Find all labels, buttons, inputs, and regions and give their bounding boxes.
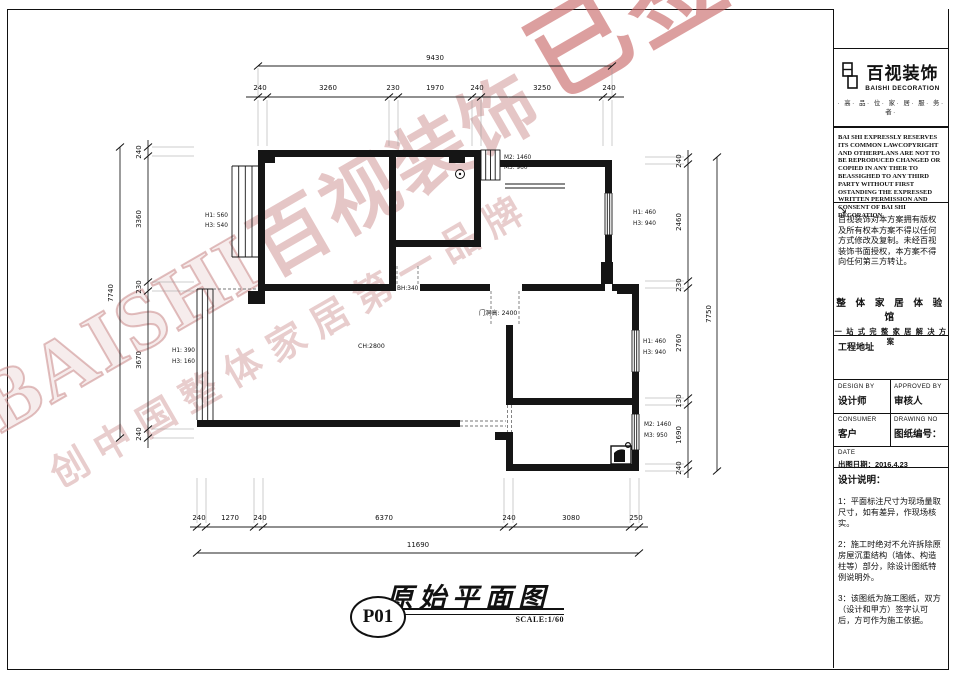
design-note-1: 1：平面标注尺寸为现场量取尺寸，如有差异，作现场核实。: [838, 496, 944, 529]
design-note-2: 2：施工时绝对不允许拆除原房屋沉重结构（墙体、构造柱等）部分，除设计图纸特例说明…: [838, 539, 944, 583]
walls: [197, 150, 639, 471]
label-m3-right: M3: 950: [644, 433, 668, 439]
dim-top-seg: 240: [470, 84, 483, 92]
approver-value: 审核人: [894, 393, 944, 407]
entry-door-hatch: [481, 150, 500, 180]
label-door-height: 门洞高: 2400: [479, 309, 517, 317]
label-ch: CH:2800: [358, 343, 385, 350]
bathroom-door-hatch: [632, 414, 639, 450]
dim-top-seg: 230: [386, 84, 399, 92]
dim-right-total: 7750: [705, 305, 713, 323]
label-m3-top: M3: 960: [504, 165, 528, 171]
logo-block: 百视装饰 BAISHI DECORATION · 高· 品· 位· 家· 居· …: [834, 48, 948, 128]
date-cell: DATE 出图日期：2016.4.23: [834, 446, 948, 468]
dim-top-seg: 240: [602, 84, 615, 92]
consumer-value: 客户: [838, 426, 886, 440]
dim-right-seg: 230: [675, 278, 683, 291]
design-by-label: DESIGN BY: [838, 383, 886, 390]
sheet-number-badge: P01: [350, 596, 406, 638]
drawing-no-value: 图纸编号：: [894, 426, 944, 440]
design-notes-block: 设计说明： 1：平面标注尺寸为现场量取尺寸，如有差异，作现场核实。 2：施工时绝…: [834, 468, 948, 640]
project-address-label: 工程地址: [838, 340, 944, 353]
consumer-label: CONSUMER: [838, 416, 886, 423]
dim-left-total: 7740: [107, 284, 115, 302]
dim-bottom-seg: 3080: [562, 514, 580, 522]
signature-grid: DESIGN BY 设计师 APPROVED BY 审核人 CONSUMER 客…: [834, 380, 948, 468]
dim-top-seg: 3260: [319, 84, 337, 92]
drawing-no-label: DRAWING NO: [894, 416, 944, 423]
scale-note: SCALE:1/60: [470, 615, 564, 624]
title-underline: [400, 608, 564, 615]
baishi-logo-icon: [842, 62, 862, 90]
dim-bottom-seg: 240: [192, 514, 205, 522]
dim-top-seg: 240: [253, 84, 266, 92]
dim-bottom-total: 11690: [407, 541, 429, 549]
dim-top: 9430 240 3260 230 1970 240 3250 240: [246, 54, 624, 101]
label-h3-right-up: H3: 940: [633, 221, 656, 227]
dim-top-seg: 1970: [426, 84, 444, 92]
title-block-panel: 百视装饰 BAISHI DECORATION · 高· 品· 位· 家· 居· …: [833, 9, 948, 668]
dim-right-seg: 240: [675, 154, 683, 167]
window-balcony-upper-left: [232, 166, 258, 257]
label-m2-top: M2: 1460: [504, 155, 532, 161]
plan-labels: M2: 1460 M3: 960 H1: 560 H3: 540 H1: 460…: [172, 155, 672, 439]
window-right-middle: [632, 330, 639, 372]
dim-top-seg: 3250: [533, 84, 551, 92]
label-h3-right-mid: H3: 940: [643, 350, 666, 356]
label-m2-right: M2: 1460: [644, 422, 672, 428]
toilet-icon: [611, 443, 631, 464]
dim-top-total: 9430: [426, 54, 444, 62]
label-h1-left-up: H1: 560: [205, 213, 228, 219]
dim-right-seg: 130: [675, 394, 683, 407]
label-h1-right-mid: H1: 460: [643, 339, 666, 345]
label-h3-left-low: H3: 160: [172, 359, 195, 365]
approved-by-cell: APPROVED BY 审核人: [890, 380, 948, 413]
date-label: DATE: [838, 449, 944, 456]
dim-left-seg: 230: [135, 280, 143, 293]
dim-bottom: 240 1270 240 6370 240 3080 250 11690: [190, 514, 648, 557]
dim-right-seg: 2460: [675, 213, 683, 231]
approved-by-label: APPROVED BY: [894, 383, 944, 390]
drawing-no-cell: DRAWING NO 图纸编号：: [890, 413, 948, 446]
design-note-3: 3：该图纸为施工图纸，双方（设计和甲方）签字认可后，方可作为施工依据。: [838, 593, 944, 626]
dim-bottom-seg: 240: [253, 514, 266, 522]
consumer-cell: CONSUMER 客户: [834, 413, 890, 446]
dim-bottom-seg: 250: [629, 514, 642, 522]
floor-drain-icon: [456, 170, 465, 179]
label-h3-left-up: H3: 540: [205, 223, 228, 229]
dim-bottom-seg: 6370: [375, 514, 393, 522]
logo-name-en: BAISHI DECORATION: [865, 85, 939, 92]
design-notes-title: 设计说明：: [838, 472, 944, 486]
dim-right-seg: 240: [675, 461, 683, 474]
project-address-block: 工程地址: [834, 335, 948, 380]
dim-left-seg: 3670: [135, 351, 143, 369]
copyright-chinese: 百视装饰对本方案拥有版权及所有权本方案不得以任何方式修改及复制。未经百视装饰书面…: [834, 215, 948, 268]
dim-left-seg: 240: [135, 145, 143, 158]
design-by-cell: DESIGN BY 设计师: [834, 380, 890, 413]
dim-bottom-seg: 1270: [221, 514, 239, 522]
columns: [248, 150, 632, 304]
dim-right-seg: 1690: [675, 426, 683, 444]
extension-lines: [152, 68, 684, 523]
designer-value: 设计师: [838, 393, 886, 407]
experience-hall-line: 整 体 家 居 体 验 馆: [834, 295, 948, 323]
logo-slogan: · 高· 品· 位· 家· 居· 服· 务· 者·: [834, 98, 948, 116]
label-h1-right-up: H1: 460: [633, 210, 656, 216]
dim-bottom-seg: 240: [502, 514, 515, 522]
label-bh: BH:340: [397, 286, 419, 292]
dim-right-seg: 2760: [675, 334, 683, 352]
window-upper-right: [605, 193, 612, 235]
logo-name-cn: 百视装饰: [865, 59, 939, 84]
window-lower-left: [197, 289, 213, 420]
dim-left-seg: 3360: [135, 210, 143, 228]
label-h1-left-low: H1: 390: [172, 348, 195, 354]
dim-left-seg: 240: [135, 427, 143, 440]
dim-right: 240 2460 230 2760 130 1690 240 7750: [675, 150, 721, 478]
copyright-english: BAI SHI EXPRESSLY RESERVES ITS COMMON LA…: [834, 131, 948, 203]
dim-left: 7740 240 3360 230 3670 240: [107, 140, 152, 448]
